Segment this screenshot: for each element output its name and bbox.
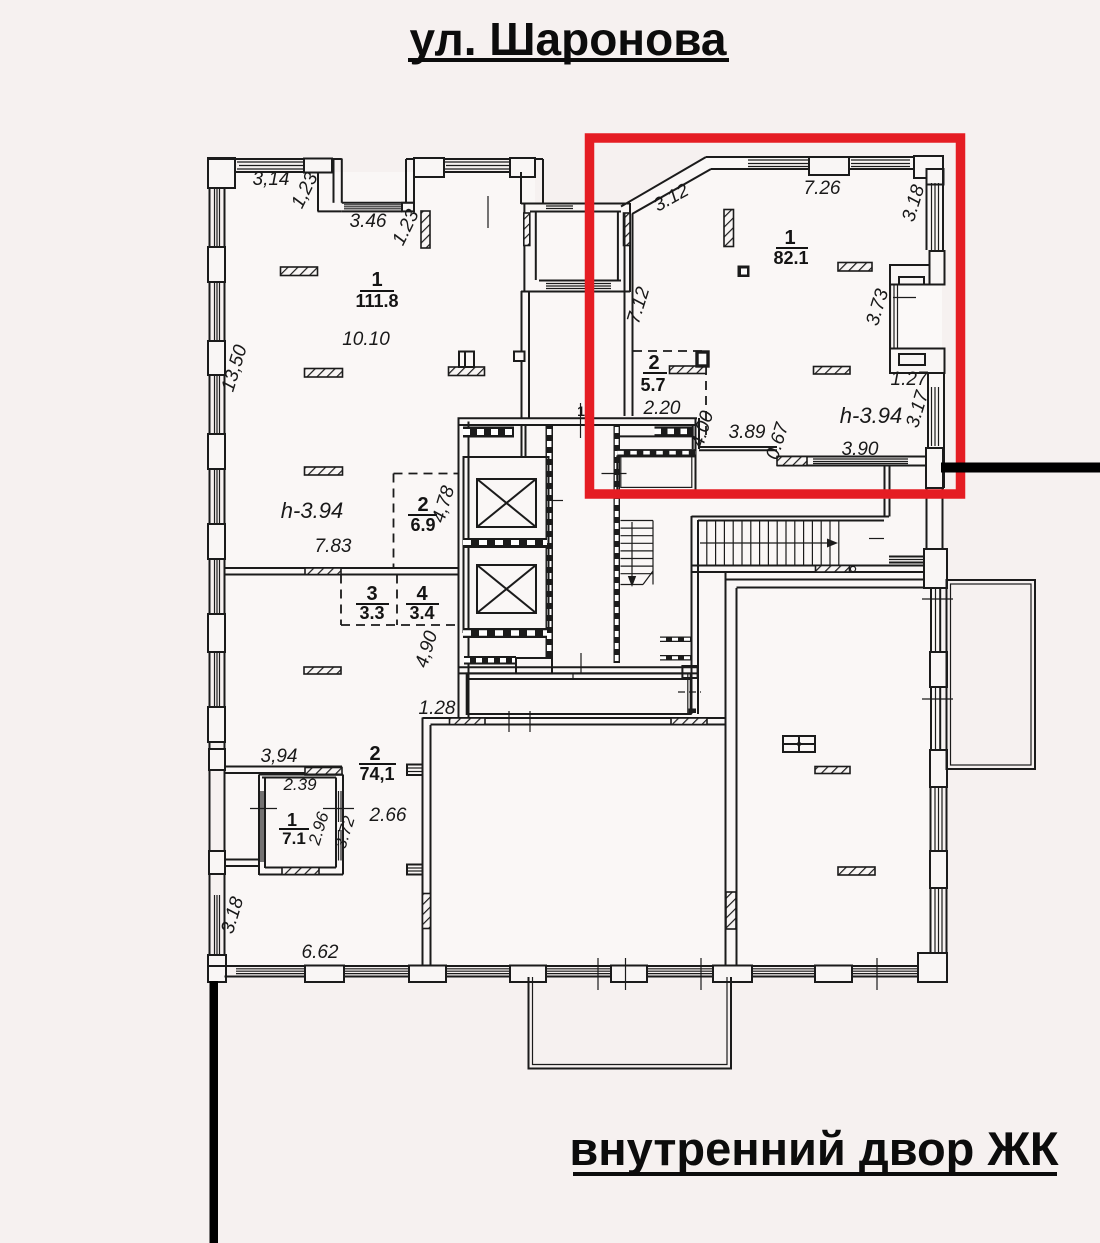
svg-text:1.27: 1.27 [891,369,929,390]
svg-text:74,1: 74,1 [359,764,394,784]
svg-text:3,94: 3,94 [261,746,298,767]
svg-text:2: 2 [369,743,380,765]
svg-text:4: 4 [416,583,428,605]
svg-text:внутренний двор ЖК: внутренний двор ЖК [569,1122,1059,1175]
svg-text:5.7: 5.7 [640,375,665,395]
svg-text:10.10: 10.10 [342,329,390,350]
svg-text:111.8: 111.8 [355,291,398,311]
svg-text:1: 1 [577,403,585,419]
svg-text:3.46: 3.46 [350,211,387,232]
svg-text:3,14: 3,14 [253,169,290,190]
svg-text:1.28: 1.28 [419,698,456,719]
svg-text:1: 1 [287,810,297,830]
svg-text:3.89: 3.89 [729,422,766,443]
svg-text:2: 2 [417,494,428,516]
svg-text:3: 3 [366,583,377,605]
svg-text:ул. Шаронова: ул. Шаронова [410,13,727,65]
svg-text:82.1: 82.1 [773,248,808,268]
svg-text:3.90: 3.90 [842,439,879,460]
svg-text:h-3.94: h-3.94 [281,498,343,523]
svg-text:2: 2 [648,352,659,374]
svg-text:2.20: 2.20 [643,398,681,419]
svg-text:7.26: 7.26 [804,178,841,199]
svg-text:2.39: 2.39 [282,775,317,794]
svg-text:h-3.94: h-3.94 [840,403,902,428]
svg-text:3.3: 3.3 [359,603,384,623]
svg-text:7.83: 7.83 [315,536,352,557]
svg-text:1: 1 [371,269,382,291]
svg-text:7.1: 7.1 [282,829,306,848]
svg-text:2.66: 2.66 [369,805,407,826]
svg-text:3.4: 3.4 [409,603,434,623]
svg-text:1: 1 [784,227,795,249]
svg-text:6.62: 6.62 [302,942,339,963]
